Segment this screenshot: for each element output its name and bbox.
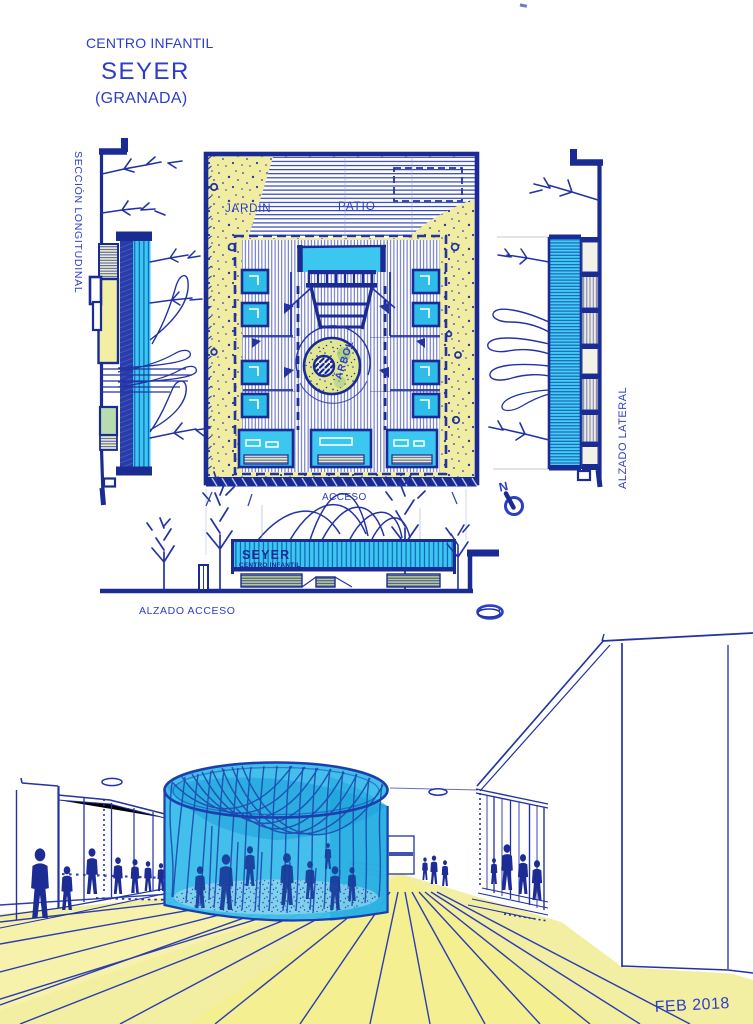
svg-text:SECCIÓN LONGITUDINAL: SECCIÓN LONGITUDINAL — [72, 151, 85, 293]
svg-text:CENTRO INFANTIL: CENTRO INFANTIL — [86, 35, 213, 51]
svg-text:(GRANADA): (GRANADA) — [95, 90, 187, 107]
svg-text:PATIO: PATIO — [338, 201, 376, 213]
svg-text:CENTRO INFANTIL: CENTRO INFANTIL — [239, 562, 301, 569]
svg-text:SEYER: SEYER — [101, 58, 190, 85]
svg-text:SEYER: SEYER — [242, 548, 290, 562]
svg-text:JARDIN: JARDIN — [225, 203, 271, 215]
svg-text:ALZADO ACCESO: ALZADO ACCESO — [139, 605, 236, 617]
svg-text:ALZADO LATERAL: ALZADO LATERAL — [617, 387, 629, 489]
